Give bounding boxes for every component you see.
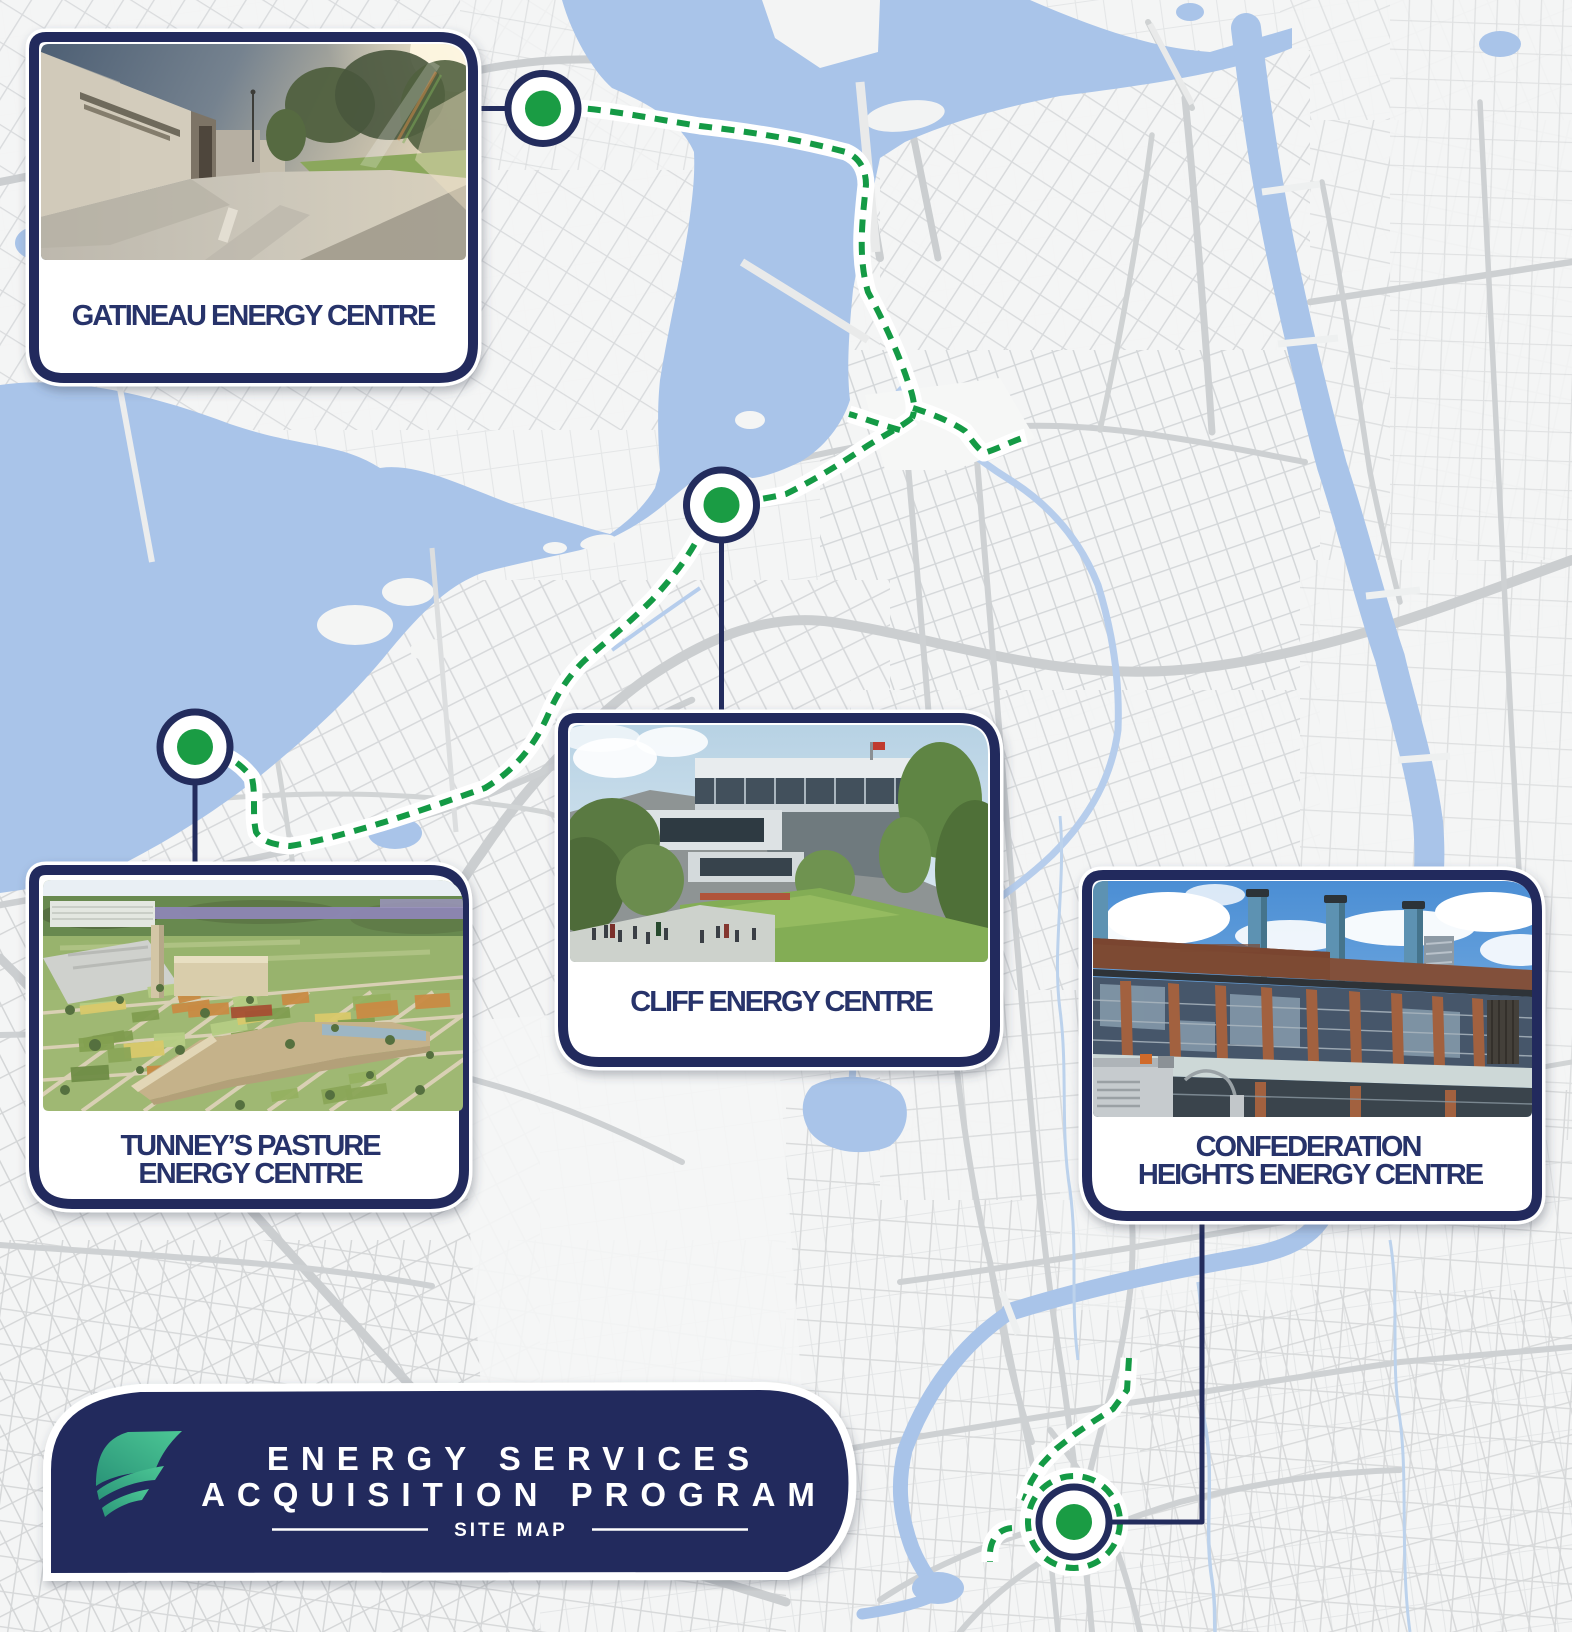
svg-text:CLIFF ENERGY CENTRE: CLIFF ENERGY CENTRE [630, 986, 933, 1018]
svg-text:ACQUISITION PROGRAM: ACQUISITION PROGRAM [201, 1476, 827, 1513]
svg-text:GATINEAU ENERGY CENTRE: GATINEAU ENERGY CENTRE [72, 300, 436, 332]
svg-text:HEIGHTS ENERGY CENTRE: HEIGHTS ENERGY CENTRE [1138, 1159, 1484, 1191]
svg-text:SITE MAP: SITE MAP [454, 1520, 568, 1541]
svg-text:ENERGY SERVICES: ENERGY SERVICES [267, 1440, 761, 1477]
svg-text:ENERGY CENTRE: ENERGY CENTRE [138, 1158, 363, 1190]
